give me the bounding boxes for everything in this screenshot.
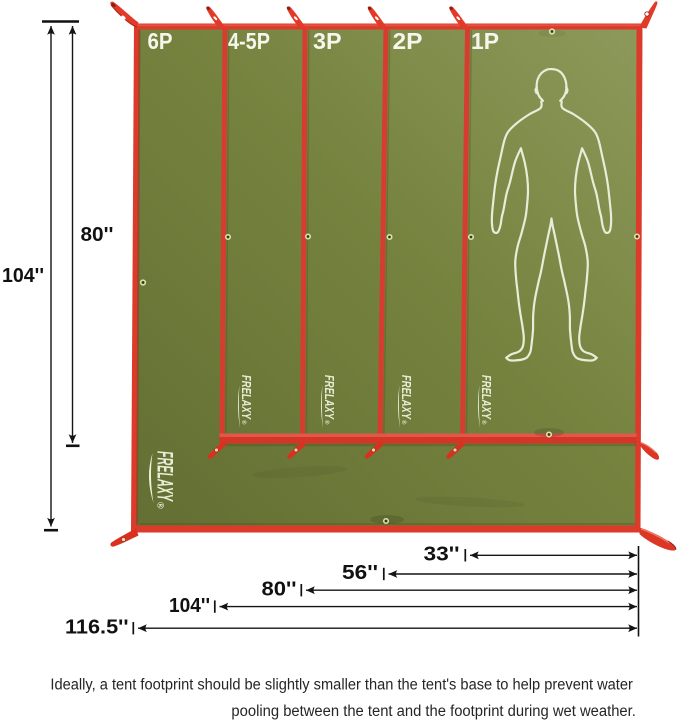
svg-text:80'': 80'' [262,577,297,600]
svg-text:6P: 6P [148,28,173,54]
svg-text:®: ® [400,420,407,425]
svg-text:104'': 104'' [169,594,210,617]
svg-text:104'': 104'' [2,264,44,287]
svg-text:®: ® [323,420,330,425]
svg-text:FRELAXY: FRELAXY [399,375,414,420]
svg-text:pooling between the tent and t: pooling between the tent and the footpri… [231,703,636,720]
svg-text:56'': 56'' [342,561,378,584]
svg-text:Ideally, a tent footprint shou: Ideally, a tent footprint should be slig… [50,677,633,694]
svg-text:®: ® [240,420,247,425]
svg-text:80'': 80'' [81,223,114,246]
svg-text:1P: 1P [471,28,499,54]
svg-text:3P: 3P [313,28,342,54]
svg-text:FRELAXY: FRELAXY [153,451,178,502]
svg-text:2P: 2P [393,28,423,54]
svg-text:33'': 33'' [424,543,460,566]
svg-text:FRELAXY: FRELAXY [239,375,254,420]
svg-text:®: ® [156,502,166,509]
svg-text:®: ® [480,420,487,425]
svg-text:4-5P: 4-5P [228,28,270,54]
svg-text:FRELAXY: FRELAXY [322,375,337,420]
svg-text:116.5'': 116.5'' [65,615,129,638]
svg-text:FRELAXY: FRELAXY [479,375,494,420]
